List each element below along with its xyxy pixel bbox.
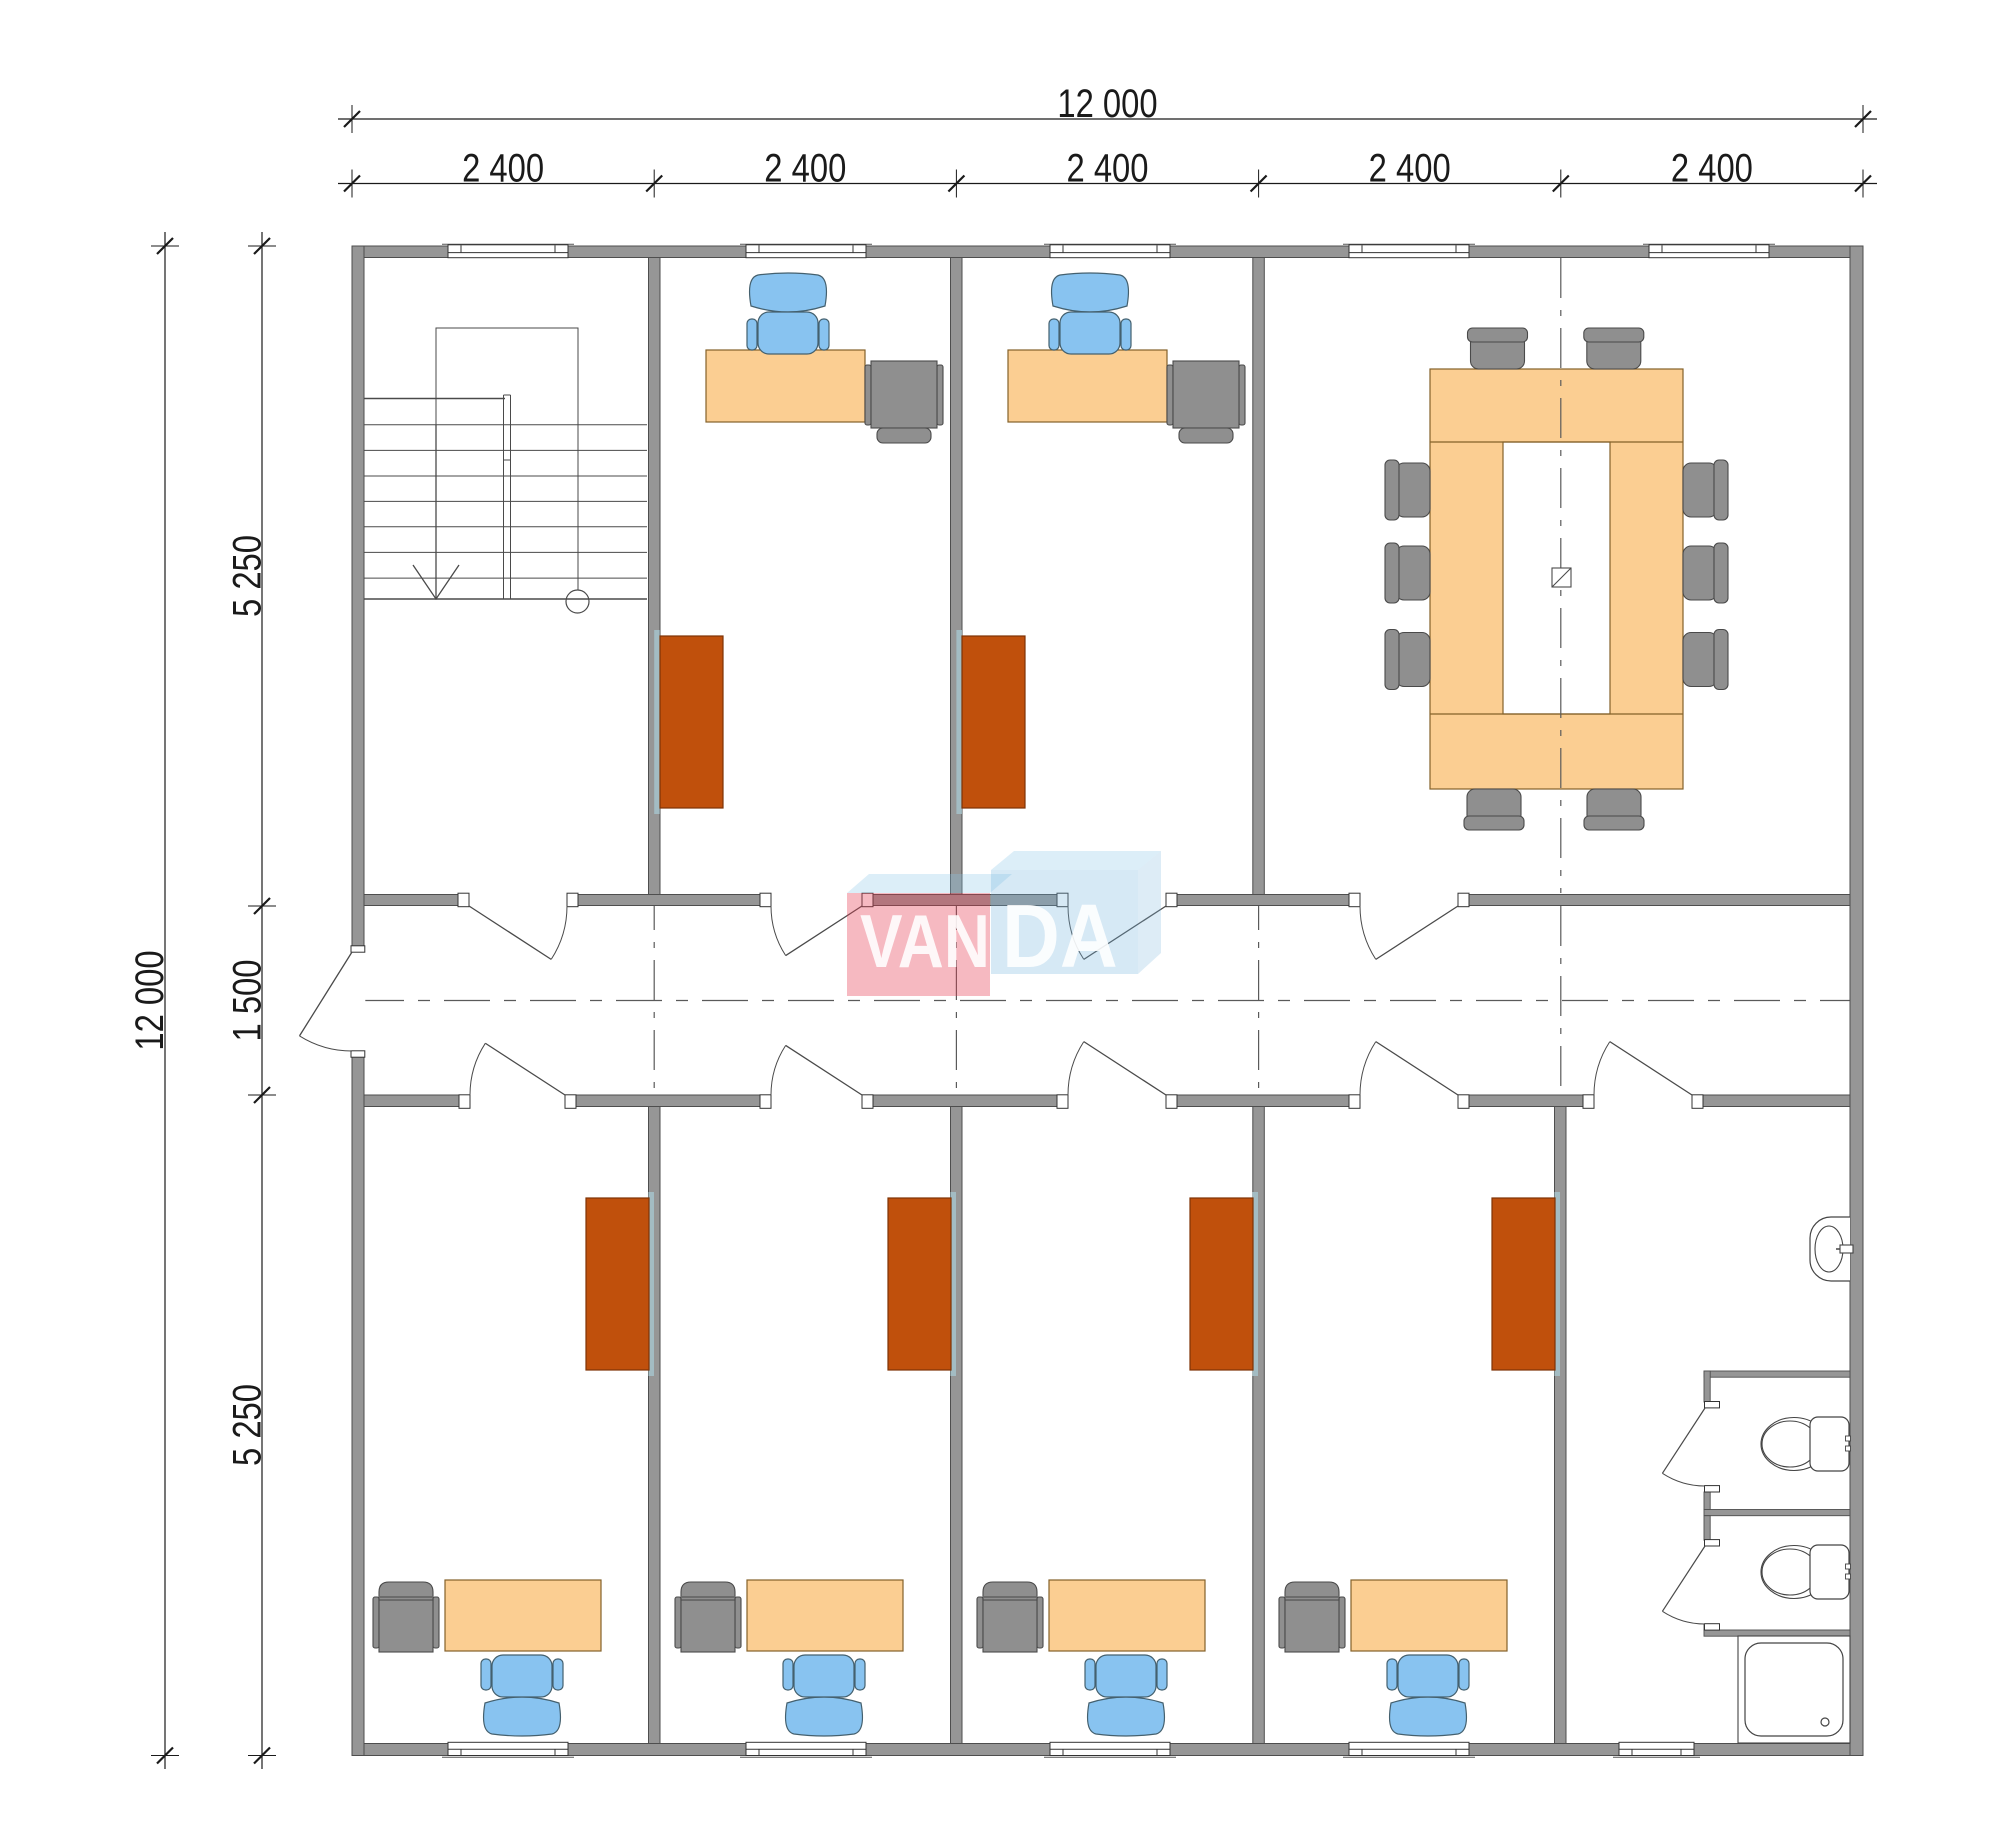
svg-text:2 400: 2 400 xyxy=(1066,145,1148,190)
svg-text:DA: DA xyxy=(1002,887,1118,987)
svg-text:5 250: 5 250 xyxy=(224,1384,269,1466)
svg-text:1 500: 1 500 xyxy=(224,959,269,1041)
svg-text:2 400: 2 400 xyxy=(764,145,846,190)
svg-text:VAN: VAN xyxy=(860,899,990,983)
svg-text:5 250: 5 250 xyxy=(224,535,269,617)
svg-text:12 000: 12 000 xyxy=(127,950,172,1050)
svg-text:2 400: 2 400 xyxy=(1671,145,1753,190)
svg-text:12 000: 12 000 xyxy=(1057,81,1157,126)
svg-text:2 400: 2 400 xyxy=(462,145,544,190)
svg-text:2 400: 2 400 xyxy=(1369,145,1451,190)
